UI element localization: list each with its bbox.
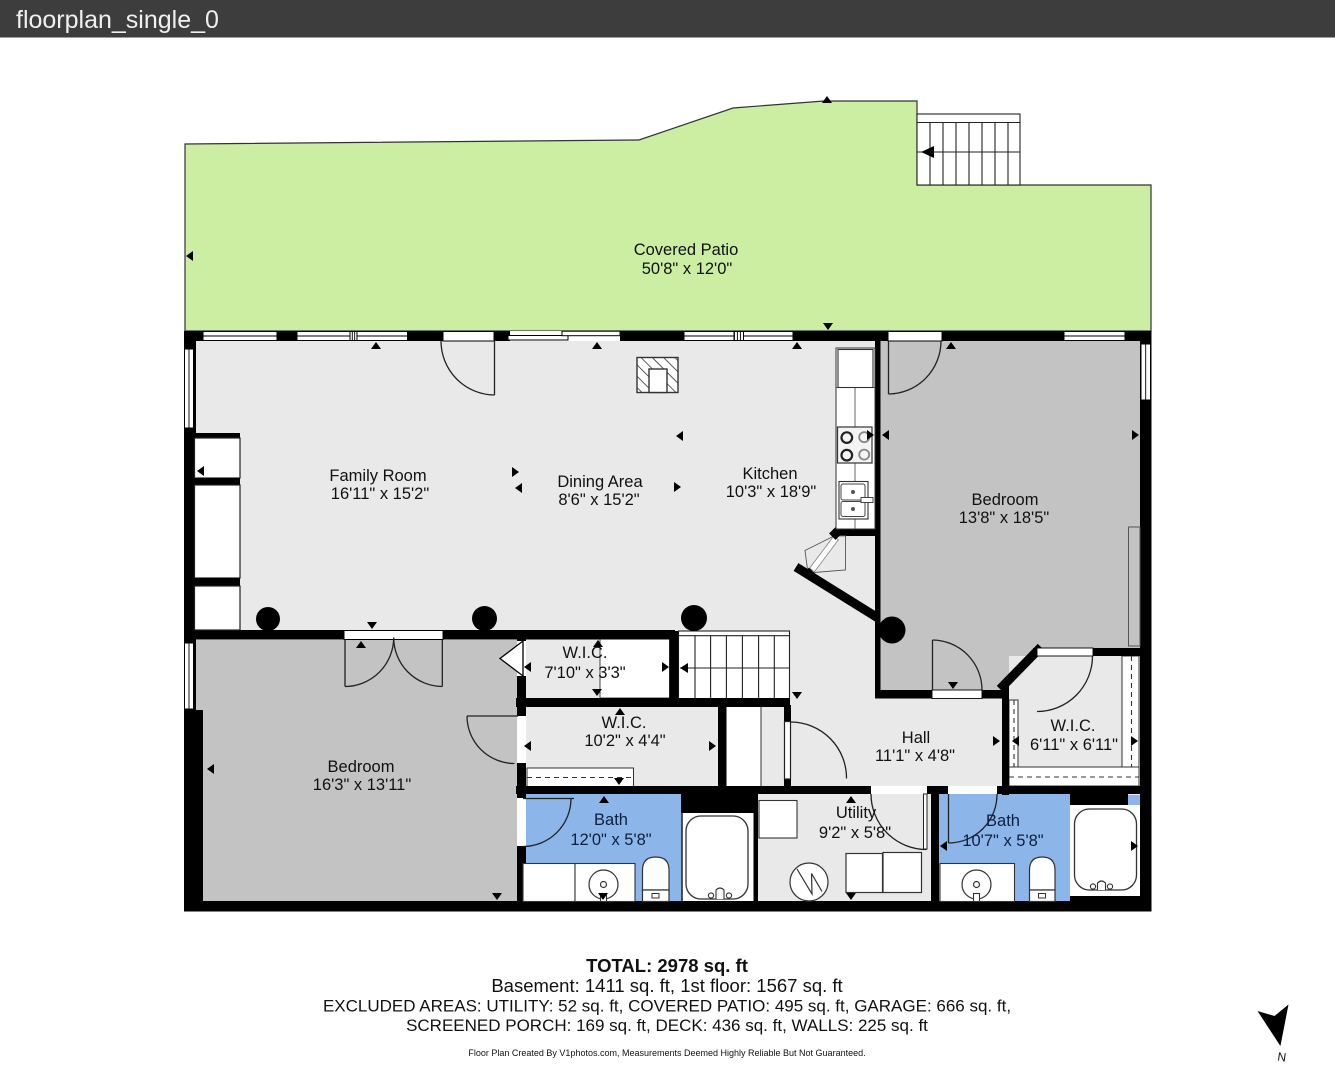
svg-text:6'11" x 6'11": 6'11" x 6'11" xyxy=(1030,736,1118,754)
svg-text:Bedroom: Bedroom xyxy=(972,491,1039,509)
svg-text:W.I.C.: W.I.C. xyxy=(602,714,647,732)
svg-text:Bath: Bath xyxy=(594,811,628,829)
svg-text:Dining Area: Dining Area xyxy=(557,473,643,491)
svg-text:9'2" x 5'8": 9'2" x 5'8" xyxy=(819,824,891,842)
svg-text:12'0" x 5'8": 12'0" x 5'8" xyxy=(570,831,651,849)
svg-text:13'8" x 18'5": 13'8" x 18'5" xyxy=(959,509,1050,527)
svg-text:SCREENED PORCH: 169 sq. ft, DE: SCREENED PORCH: 169 sq. ft, DECK: 436 sq… xyxy=(406,1016,928,1035)
svg-text:16'11" x 15'2": 16'11" x 15'2" xyxy=(331,485,430,503)
svg-text:7'10" x 3'3": 7'10" x 3'3" xyxy=(544,664,625,682)
svg-text:Basement: 1411 sq. ft, 1st flo: Basement: 1411 sq. ft, 1st floor: 1567 s… xyxy=(491,975,842,996)
svg-text:11'1" x 4'8": 11'1" x 4'8" xyxy=(875,747,955,765)
svg-text:Hall: Hall xyxy=(902,729,930,747)
svg-text:Covered Patio: Covered Patio xyxy=(634,241,739,259)
svg-text:EXCLUDED AREAS: UTILITY: 52 sq: EXCLUDED AREAS: UTILITY: 52 sq. ft, COVE… xyxy=(323,997,1011,1016)
svg-text:floorplan_single_0: floorplan_single_0 xyxy=(16,6,219,34)
svg-text:Bath: Bath xyxy=(986,812,1020,830)
svg-text:10'3" x 18'9": 10'3" x 18'9" xyxy=(726,483,817,501)
svg-text:10'2" x 4'4": 10'2" x 4'4" xyxy=(584,732,665,750)
svg-text:Bedroom: Bedroom xyxy=(328,758,395,776)
svg-text:8'6" x 15'2": 8'6" x 15'2" xyxy=(558,491,639,509)
svg-text:TOTAL: 2978 sq. ft: TOTAL: 2978 sq. ft xyxy=(586,955,748,976)
svg-text:Utility: Utility xyxy=(836,804,877,822)
svg-text:W.I.C.: W.I.C. xyxy=(1051,717,1096,735)
svg-text:50'8" x 12'0": 50'8" x 12'0" xyxy=(642,260,733,278)
svg-text:10'7" x 5'8": 10'7" x 5'8" xyxy=(962,832,1043,850)
svg-text:N: N xyxy=(1277,1049,1288,1064)
svg-text:Kitchen: Kitchen xyxy=(742,465,797,483)
svg-text:Floor Plan Created By V1photos: Floor Plan Created By V1photos.com, Meas… xyxy=(468,1048,865,1058)
svg-text:16'3" x 13'11": 16'3" x 13'11" xyxy=(313,776,412,794)
svg-text:Family Room: Family Room xyxy=(329,467,426,485)
